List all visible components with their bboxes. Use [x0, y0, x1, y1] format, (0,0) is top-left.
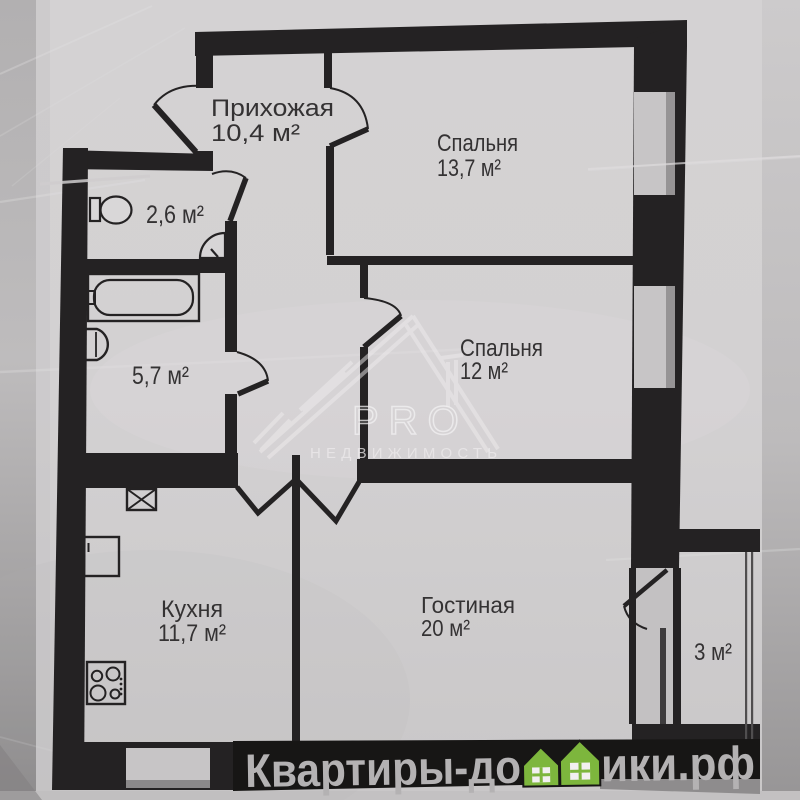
- svg-text:10,4 м²: 10,4 м²: [211, 120, 300, 147]
- svg-text:PRO: PRO: [352, 399, 469, 443]
- svg-text:12 м²: 12 м²: [460, 358, 508, 385]
- svg-text:Кухня: Кухня: [161, 596, 223, 623]
- svg-text:5,7 м²: 5,7 м²: [132, 362, 189, 390]
- svg-text:11,7 м²: 11,7 м²: [158, 620, 226, 647]
- svg-text:13,7 м²: 13,7 м²: [437, 155, 501, 182]
- svg-text:2,6 м²: 2,6 м²: [146, 201, 204, 229]
- svg-text:НЕДВИЖИМОСТЬ: НЕДВИЖИМОСТЬ: [310, 445, 502, 462]
- svg-text:Спальня: Спальня: [437, 130, 518, 157]
- svg-text:ики.рф: ики.рф: [601, 736, 756, 791]
- svg-text:20 м²: 20 м²: [421, 615, 470, 641]
- svg-text:3 м²: 3 м²: [694, 639, 732, 666]
- svg-text:Квартиры-до: Квартиры-до: [245, 740, 522, 797]
- svg-text:Прихожая: Прихожая: [211, 95, 334, 122]
